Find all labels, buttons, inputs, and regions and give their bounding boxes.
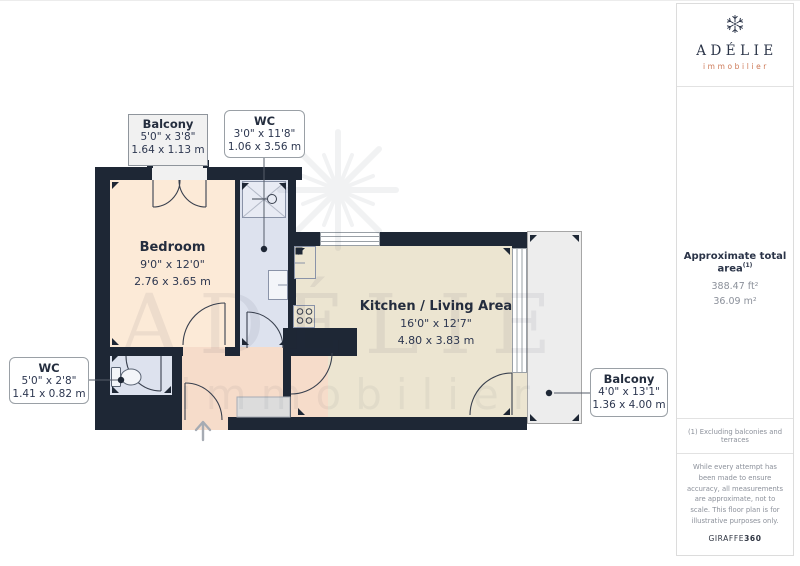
kitchen-sink-unit [295, 247, 316, 279]
washer [269, 271, 288, 300]
giraffe360-credit: GIRAFFE360 [677, 534, 793, 543]
total-area-title-text: Approximate total area [684, 251, 787, 274]
room-name: Kitchen / Living Area [326, 299, 546, 314]
total-area-title: Approximate total area(1) [677, 251, 793, 274]
room-dims-imperial: 3'0" x 11'8" [225, 128, 304, 141]
room-name: Balcony [591, 372, 667, 386]
window-top [321, 233, 380, 246]
stove [294, 306, 315, 328]
room-name: Bedroom [100, 240, 245, 255]
credit-brand-bold: 360 [744, 534, 761, 543]
room-name: Balcony [129, 117, 207, 131]
hallway-cupboard [237, 397, 290, 417]
floor-plan-page: ADÉLIE immobilier Bedroom 9'0" x 12'0" 2… [0, 0, 800, 566]
sidebar-footer: (1) Excluding balconies and terraces Whi… [677, 418, 793, 555]
toilet [112, 368, 142, 387]
footnote-text: (1) Excluding balconies and terraces [677, 418, 793, 454]
room-name: WC [10, 361, 88, 375]
room-dims-metric: 1.41 x 0.82 m [10, 388, 88, 401]
info-sidebar: ADÉLIE immobilier Approximate total area… [676, 3, 794, 556]
balcony-right-label: Balcony 4'0" x 13'1" 1.36 x 4.00 m [590, 368, 668, 417]
room-dims-metric: 1.36 x 4.00 m [591, 399, 667, 412]
room-dims-metric: 1.64 x 1.13 m [129, 144, 207, 157]
total-area-values: 388.47 ft² 36.09 m² [677, 279, 793, 309]
room-dims-metric: 4.80 x 3.83 m [326, 333, 546, 348]
room-dims-metric: 2.76 x 3.65 m [100, 274, 245, 289]
room-dims-imperial: 4'0" x 13'1" [591, 386, 667, 399]
credit-brand: GIRAFFE [708, 534, 744, 543]
room-dims-imperial: 9'0" x 12'0" [100, 257, 245, 272]
room-name: WC [225, 114, 304, 128]
brand-tagline: immobilier [677, 62, 793, 71]
snowflake-logo-icon [725, 14, 745, 34]
brand-logo: ADÉLIE immobilier [677, 4, 793, 87]
bedroom-label: Bedroom 9'0" x 12'0" 2.76 x 3.65 m [100, 240, 245, 289]
brand-name: ADÉLIE [677, 43, 793, 59]
room-dims-imperial: 16'0" x 12'7" [326, 316, 546, 331]
disclaimer-text: While every attempt has been made to ens… [677, 454, 793, 527]
kitchen-living-label: Kitchen / Living Area 16'0" x 12'7" 4.80… [326, 299, 546, 348]
total-area-metric: 36.09 m² [677, 294, 793, 309]
room-dims-imperial: 5'0" x 2'8" [10, 375, 88, 388]
total-area-imperial: 388.47 ft² [677, 279, 793, 294]
room-dims-metric: 1.06 x 3.56 m [225, 141, 304, 154]
room-dims-imperial: 5'0" x 3'8" [129, 131, 207, 144]
wc-left-label: WC 5'0" x 2'8" 1.41 x 0.82 m [9, 357, 89, 404]
balcony-top-label: Balcony 5'0" x 3'8" 1.64 x 1.13 m [128, 114, 208, 166]
wc-top-label: WC 3'0" x 11'8" 1.06 x 3.56 m [224, 110, 305, 158]
footnote-marker: (1) [743, 262, 753, 269]
total-area-block: Approximate total area(1) 388.47 ft² 36.… [677, 251, 793, 309]
